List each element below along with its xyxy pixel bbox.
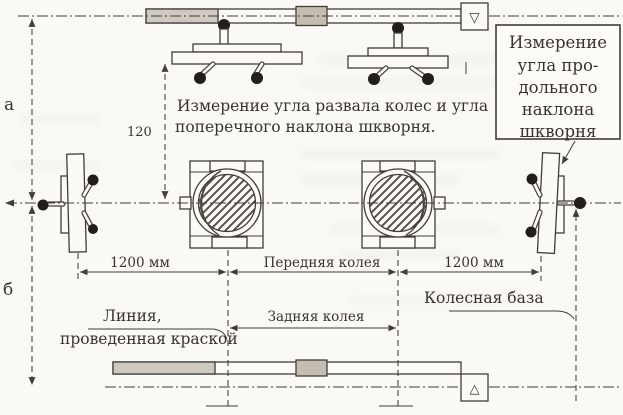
top-datum-box: ▽ bbox=[461, 3, 488, 30]
scanned-figure-page: ▽ △ bbox=[0, 0, 623, 415]
right-1200-label: 1200 мм bbox=[444, 255, 504, 271]
callout-line-3: дольного bbox=[518, 78, 597, 97]
callout-line-5: шкворня bbox=[520, 122, 597, 141]
wheelbase-label: Колесная база bbox=[424, 289, 544, 307]
dimension-a-label: а bbox=[4, 95, 14, 115]
wheel-alignment-diagram: ▽ △ bbox=[0, 0, 623, 415]
paint-line-label-2: проведенная краской bbox=[60, 330, 238, 348]
dimension-120-label: 120 bbox=[127, 125, 152, 140]
top-datum-mark-icon: ▽ bbox=[469, 10, 480, 26]
sensor-dot bbox=[194, 72, 206, 84]
left-1200-label: 1200 мм bbox=[110, 255, 170, 271]
sensor-dot bbox=[88, 224, 98, 234]
turntable-right bbox=[362, 161, 445, 248]
axle-end-dot-right bbox=[574, 197, 586, 209]
callout-line-4: наклона bbox=[522, 100, 595, 119]
sensor-dot bbox=[368, 73, 380, 85]
bottom-datum-box: △ bbox=[461, 374, 488, 401]
dimension-b-label: б bbox=[3, 280, 13, 300]
camber-caption-line-1: Измерение угла развала колес и угла bbox=[177, 97, 488, 115]
bottom-datum-mark-icon: △ bbox=[470, 382, 480, 397]
turntable-left bbox=[180, 161, 263, 248]
callout-line-1: Измерение bbox=[509, 33, 607, 52]
sensor-dot bbox=[527, 174, 538, 185]
camber-caption-line-2: поперечного наклона шкворня. bbox=[175, 118, 436, 136]
front-track-label: Передняя колея bbox=[264, 255, 381, 271]
hatched-disc bbox=[199, 175, 256, 232]
sensor-dot bbox=[392, 22, 404, 34]
hatched-disc bbox=[370, 175, 427, 232]
sensor-dot bbox=[526, 227, 537, 238]
sensor-dot bbox=[251, 72, 263, 84]
axle-end-dot-left bbox=[38, 200, 49, 211]
paint-line-label-1: Линия, bbox=[103, 307, 162, 325]
sensor-dot bbox=[422, 73, 434, 85]
sensor-dot bbox=[88, 175, 99, 186]
bottom-straightedge bbox=[113, 360, 461, 376]
callout-line-2: угла про- bbox=[518, 56, 599, 75]
rear-track-label: Задняя колея bbox=[268, 309, 365, 325]
